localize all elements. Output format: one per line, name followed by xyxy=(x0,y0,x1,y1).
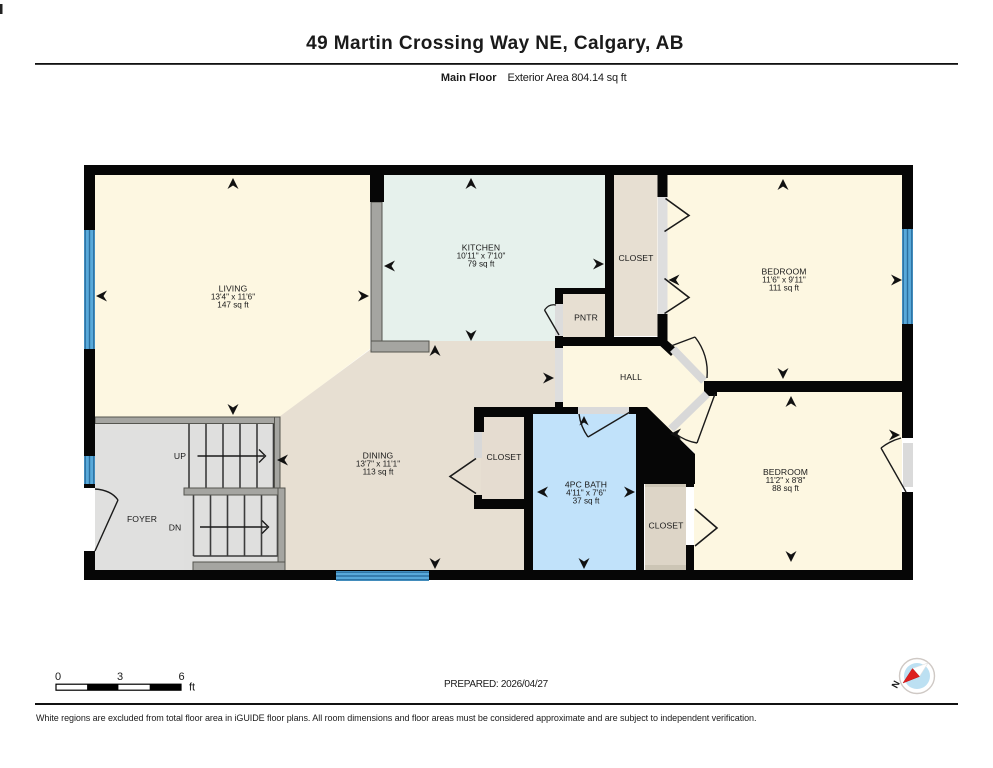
svg-text:Main Floor: Main Floor xyxy=(441,72,497,84)
svg-text:113 sq ft: 113 sq ft xyxy=(363,468,395,477)
svg-text:FOYER: FOYER xyxy=(127,514,157,524)
svg-text:6: 6 xyxy=(178,671,184,683)
svg-text:147 sq ft: 147 sq ft xyxy=(217,300,249,309)
svg-text:111 sq ft: 111 sq ft xyxy=(769,284,800,293)
svg-text:CLOSET: CLOSET xyxy=(487,452,523,462)
svg-text:CLOSET: CLOSET xyxy=(649,521,685,531)
svg-text:88 sq ft: 88 sq ft xyxy=(772,484,800,493)
svg-text:0: 0 xyxy=(55,671,61,683)
svg-text:UP: UP xyxy=(174,451,186,461)
svg-text:37 sq ft: 37 sq ft xyxy=(573,497,601,506)
svg-text:HALL: HALL xyxy=(620,372,642,382)
svg-text:PREPARED: 2026/04/27: PREPARED: 2026/04/27 xyxy=(444,679,549,690)
svg-text:PNTR: PNTR xyxy=(574,313,598,323)
svg-text:White regions are excluded fro: White regions are excluded from total fl… xyxy=(36,713,756,723)
svg-text:3: 3 xyxy=(117,671,123,683)
svg-text:79 sq ft: 79 sq ft xyxy=(468,260,496,269)
svg-text:ft: ft xyxy=(189,682,195,694)
svg-text:Exterior Area 804.14 sq ft: Exterior Area 804.14 sq ft xyxy=(508,72,627,84)
svg-text:CLOSET: CLOSET xyxy=(619,253,655,263)
svg-text:49 Martin Crossing Way NE, Cal: 49 Martin Crossing Way NE, Calgary, AB xyxy=(306,33,684,54)
svg-text:DN: DN xyxy=(169,523,182,533)
